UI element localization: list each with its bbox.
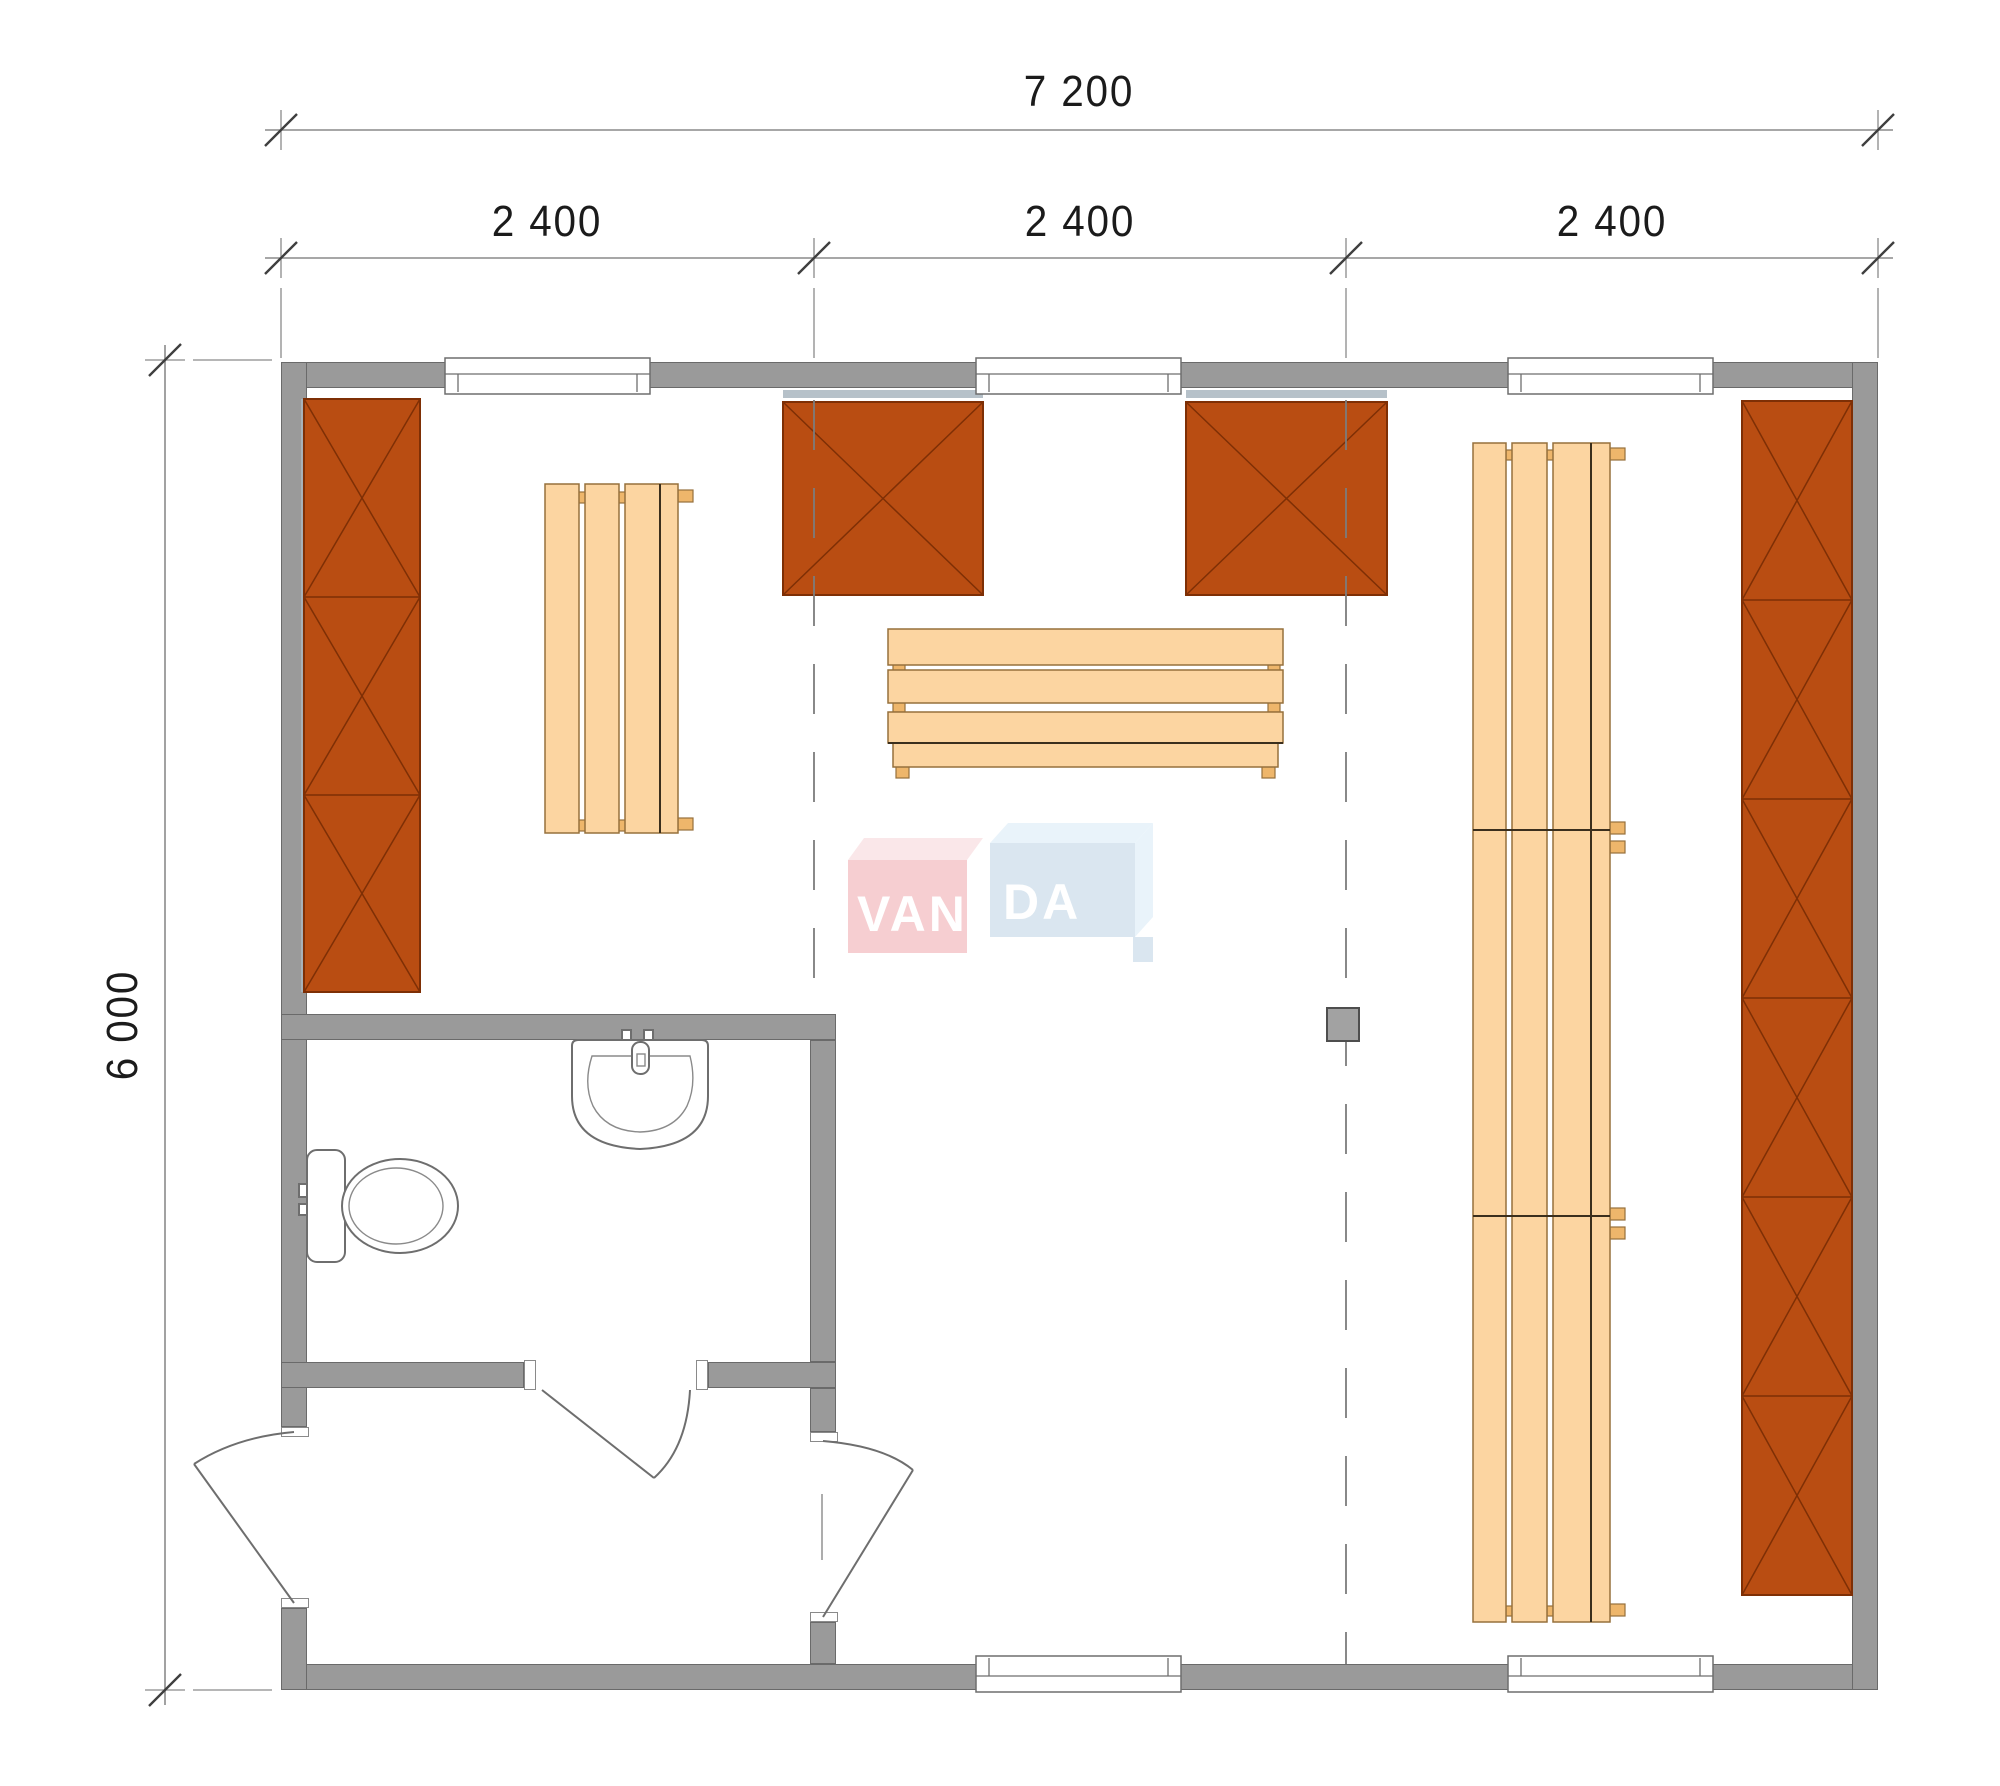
dimension-modules (265, 238, 1894, 358)
entry-door (194, 1432, 294, 1603)
window-top-3 (1508, 358, 1713, 394)
toilet (299, 1150, 458, 1262)
bathroom-door (542, 1390, 690, 1478)
window-top-1 (445, 358, 650, 394)
washbasin (572, 1030, 708, 1149)
logo-blue-step (1133, 937, 1153, 962)
dim-module-3-label: 2 400 (1557, 197, 1668, 247)
dim-module-2-label: 2 400 (1025, 197, 1136, 247)
window-bottom-1 (976, 1656, 1181, 1692)
vanda-logo: VAN DA (845, 816, 1165, 986)
floor-plan: 7 200 2 400 2 400 2 400 6 000 VAN DA (0, 0, 2000, 1786)
logo-blue-top-face (990, 823, 1153, 843)
window-top-2 (976, 358, 1181, 394)
dim-module-1-label: 2 400 (492, 197, 603, 247)
logo-pink-top-face (848, 838, 983, 860)
sauna-heater (1326, 1007, 1360, 1042)
logo-text-van: VAN (857, 886, 968, 942)
dim-total-width-label: 7 200 (1024, 67, 1135, 117)
logo-blue-side-face (1135, 823, 1153, 937)
logo-text-da: DA (1003, 874, 1081, 930)
sauna-room-door (822, 1441, 913, 1617)
window-bottom-2 (1508, 1656, 1713, 1692)
dimension-depth (145, 344, 272, 1706)
dim-depth-label: 6 000 (98, 970, 148, 1081)
